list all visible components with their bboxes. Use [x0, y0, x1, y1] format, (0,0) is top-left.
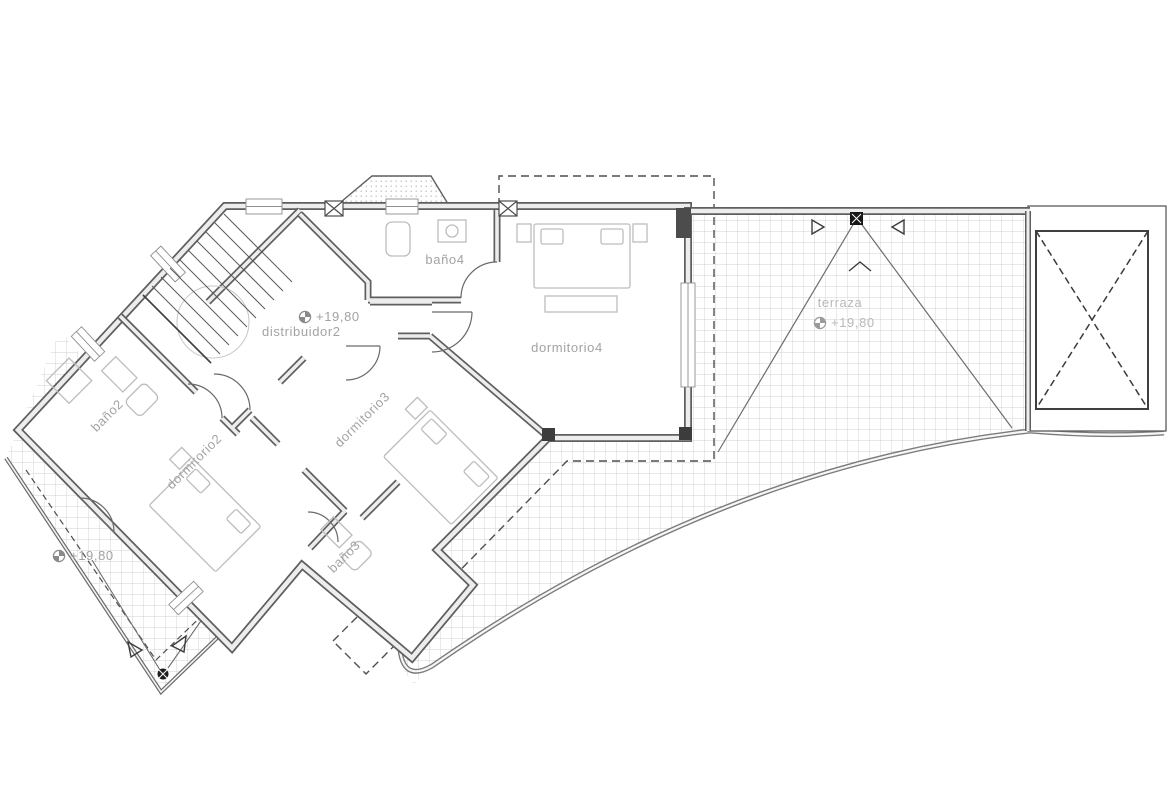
room-label-dormitorio4: dormitorio4	[524, 340, 610, 355]
room-label-bano4: baño4	[413, 252, 477, 267]
level-marker-distribuidor2: +19,80	[298, 309, 360, 324]
pillar	[676, 208, 691, 238]
level-value: +19,80	[70, 548, 114, 563]
floor-plan-drawing	[0, 0, 1170, 785]
level-marker-terraza: +19,80	[813, 315, 875, 330]
skylight-void-box	[1028, 206, 1166, 431]
drain-point-icon	[850, 212, 863, 225]
drain-point-icon	[158, 669, 169, 680]
level-value: +19,80	[316, 309, 360, 324]
room-label-terraza: terraza	[812, 295, 868, 310]
benchmark-level-icon	[813, 316, 827, 330]
benchmark-level-icon	[52, 549, 66, 563]
level-marker-terraza-lower: +19,80	[52, 548, 114, 563]
level-value: +19,80	[831, 315, 875, 330]
floor-plan-canvas: baño4 +19,80 distribuidor2 dormitorio4 t…	[0, 0, 1170, 785]
room-label-distribuidor2: distribuidor2	[262, 324, 341, 339]
benchmark-level-icon	[298, 310, 312, 324]
